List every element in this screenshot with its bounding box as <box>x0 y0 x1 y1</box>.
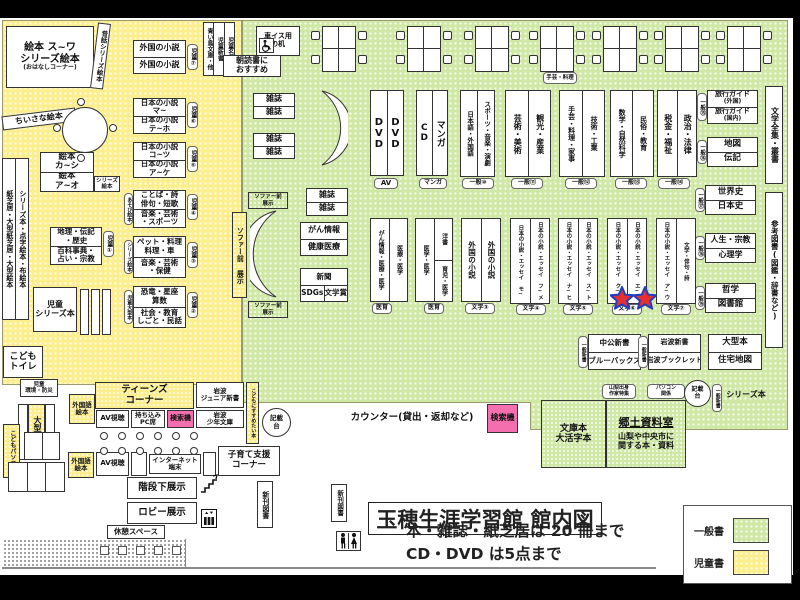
chair <box>639 55 648 64</box>
shelf-column: シリーズ本・点字絵本・布絵本 <box>15 159 28 319</box>
label-line: 哲学 <box>722 286 739 296</box>
general-shinsho-tag-1: 一般新書 <box>578 336 588 368</box>
childcare-support-corner: 子育て支援コーナー <box>218 446 280 476</box>
medical-tag-1: 医育 <box>372 303 392 314</box>
literature-tag-7: 文学⑦ <box>661 304 691 315</box>
label-line: 俳句・短歌 <box>141 200 179 208</box>
label-line: 雑誌 <box>266 95 282 104</box>
label-line: こども <box>9 352 36 362</box>
philosophy-library-shelf: 哲学図書館 <box>705 283 756 313</box>
craft-tech-shelf: 手芸・料理・家事技術・工業 <box>559 90 605 177</box>
label-line: 絵本 <box>75 465 88 472</box>
shelf-cell: 音楽・芸術・スポーツ <box>134 209 185 228</box>
medical-yosho-shelf: 医学・医学洋書育児・医学 <box>415 218 453 302</box>
shelf-column: 日本語・外国語 <box>461 91 477 176</box>
label-line: 環境・防災 <box>25 388 53 394</box>
label-line: 図書館 <box>718 300 744 310</box>
chair <box>118 447 126 455</box>
shelf-cell: SDGs文学賞 <box>301 285 347 302</box>
shelf-cell: 岩波ブックレット <box>649 352 700 370</box>
magazines-1: 雑誌雑誌 <box>253 93 295 119</box>
reading-table <box>407 26 441 72</box>
foreign-picture-books-2: 外国語絵本 <box>68 452 94 478</box>
label-line: カウンター(貸出・返却など) <box>351 413 474 424</box>
japanese-novels-a: 日本の小説・エッセイ ア~ウ文学・俳句・詩 <box>656 218 696 304</box>
loan-limit-note: 本・雑誌・紙芝居は 20 冊まで <box>406 519 624 541</box>
chair <box>716 31 725 40</box>
label-line: 大活字本 <box>555 434 591 444</box>
label-line: 大型本 <box>722 338 748 348</box>
shelf-cell: 心理学 <box>706 248 755 263</box>
shelf-strip-1 <box>80 289 89 335</box>
foreign-novels-shelf: 外国の小説外国の小説 <box>461 218 501 302</box>
chair <box>763 31 772 40</box>
shelf-cell: 日本の小説マ~ <box>134 99 185 116</box>
japanese-novels-na: 日本の小説・エッセイ ナ~ヒ日本の小説・エッセイ ス~ト <box>558 218 598 304</box>
star-marker-icon <box>633 286 657 310</box>
label-line: 岩波新書 <box>661 339 689 347</box>
bench <box>136 546 145 555</box>
geography-encyclopedia-shelf: 地理・伝記・歴史百科事典・占い・宗教 <box>50 227 102 265</box>
shelf-cell: 外国の小説 <box>134 57 185 74</box>
children-tag-6: 児童⑥ <box>187 102 198 128</box>
label-line: 階段下展示 <box>138 483 186 494</box>
shelf-column: DVD <box>387 91 404 175</box>
label-line: 算数 <box>152 297 167 305</box>
shelf-cell: 日本史 <box>706 200 755 215</box>
label-line: ジュニア新書 <box>201 395 240 402</box>
chair <box>511 55 520 64</box>
chair <box>154 447 162 455</box>
av-limit-note: CD・DVD は5点まで <box>406 542 562 564</box>
chair <box>53 124 61 132</box>
new-books-2: 新刊図書 <box>331 484 347 522</box>
label-line: ア~ケ <box>149 169 170 177</box>
shelf-column: スポーツ・音楽・演劇 <box>477 91 494 176</box>
label-line: 料理・車 <box>145 247 175 255</box>
label-line: 関係 <box>661 392 671 398</box>
new-books-1: 新刊図書 <box>257 481 273 528</box>
play-books-label: あそび絵本 <box>124 193 133 225</box>
shelf-cell: 雑誌 <box>307 202 347 216</box>
local-history-room: 郷土資料室山梨や中央市に関する本・資料 <box>606 400 686 468</box>
legend-general-label: 一般書 <box>694 523 724 538</box>
shelf-column: 技術・工業 <box>582 91 605 176</box>
shelf-column: 税金・福祉 <box>658 91 677 176</box>
math-science-shelf: 数学・自然科学民俗・教育 <box>610 90 654 177</box>
shelf-cell: 図書館 <box>706 298 755 313</box>
shelf-cell: 恐竜・星座算数 <box>134 287 185 307</box>
chair <box>358 55 367 64</box>
chair <box>100 447 108 455</box>
legend-children-label: 児童書 <box>694 555 724 570</box>
label-line: 伝記 <box>724 154 741 164</box>
pets-cooking-shelf: ペット・料理料理・車音楽・芸術・保健 <box>133 236 186 278</box>
label-line: 洋書 <box>435 219 453 260</box>
shelf-cell: 中公新書 <box>589 335 640 352</box>
label-line: 住宅地図 <box>718 356 752 366</box>
label-line: 絵本 <box>101 184 112 190</box>
reading-table <box>322 26 356 72</box>
shelf-column: 芸術・美術 <box>506 91 528 176</box>
magazines-3: 雑誌雑誌 <box>306 188 348 216</box>
chair <box>576 55 585 64</box>
shelf-cell: 雑誌 <box>307 189 347 202</box>
display-crescent <box>314 88 348 168</box>
children-tag-2: 児童② <box>187 292 198 318</box>
label-line: 休憩スペース <box>114 528 158 536</box>
sofa-display-top: ソファー前展示 <box>248 192 288 209</box>
shelf-cell: 日本の小説ア~ケ <box>134 160 185 178</box>
legend-general-swatch <box>733 518 769 543</box>
pc-related-tag: パソコン関係 <box>647 384 685 399</box>
chair <box>654 31 663 40</box>
label-line: しごと・民話 <box>137 317 182 325</box>
travel-guide-shelf: 旅行ガイド(外国)旅行ガイド(国内) <box>707 90 758 124</box>
chair <box>701 31 710 40</box>
label-line: 展示 <box>262 310 273 316</box>
legend: 一般書 児童書 <box>683 505 792 584</box>
shelf-cell: 哲学 <box>706 284 755 298</box>
series-picturebooks-label-left: シリーズ絵本 <box>124 240 133 274</box>
shelf-cell: 伝記 <box>708 152 757 167</box>
picture-books-ka-o: 絵本カ~シ絵本ア~オ <box>40 152 94 192</box>
label-line: テ~ホ <box>149 125 170 133</box>
shelf-cell: 雑誌 <box>254 134 294 146</box>
teens-corner: ティーンズコーナー <box>95 382 194 409</box>
chair <box>358 31 367 40</box>
shelf-column: 日本の小説・エッセイ ア~ウ <box>657 219 676 303</box>
shelf-column: 医学・医学 <box>416 219 434 301</box>
av-seat-2: AV視聴 <box>96 452 129 476</box>
japanese-novels-mo: 日本の小説・エッセイ モ~日本の小説・エッセイ フ~メ <box>510 218 550 304</box>
children-environment-shelf: 児童環境・防災 <box>20 379 58 397</box>
writing-desk-1: 記載台 <box>262 408 291 437</box>
chair <box>311 31 320 40</box>
newspaper-sdgs-shelf: 新聞SDGs文学賞 <box>300 268 348 302</box>
shelf-cell: 世界史 <box>706 186 755 200</box>
shelf-column: CD <box>417 91 432 175</box>
legend-children-swatch <box>733 550 769 575</box>
chair <box>396 55 405 64</box>
label-line: シリーズ本 <box>35 310 75 319</box>
shelf-cell: 旅行ガイド(国内) <box>708 107 757 124</box>
iwanami-shinsho-shelf: 岩波新書岩波ブックレット <box>648 334 701 370</box>
chair <box>639 31 648 40</box>
foreign-novels-children: 外国の小説外国の小説 <box>133 40 186 74</box>
label-line: おすすめ <box>236 66 268 75</box>
label-line: (国内) <box>724 116 742 123</box>
shelf-cell: 地図 <box>708 138 757 152</box>
shelf-cell: 音楽・芸術・保健 <box>134 257 185 278</box>
tax-politics-shelf: 税金・福祉政治・法律 <box>657 90 697 177</box>
label-line: マ~ <box>153 107 167 115</box>
general-tag-12: 一般⑫ <box>565 178 597 189</box>
shelf-cell: 新聞 <box>301 269 347 285</box>
shelf-column: 日本の小説・エッセイ ナ~ヒ <box>559 219 578 303</box>
label-line: 台 <box>273 423 280 430</box>
table-cell <box>27 463 46 491</box>
label-line: トイレ <box>9 362 36 372</box>
large-books-housing-maps: 大型本住宅地図 <box>708 334 762 370</box>
literature-complete-works: 文学全集・叢書 <box>765 86 783 184</box>
chair <box>311 55 320 64</box>
chair <box>464 31 473 40</box>
label-line: ロビー展示 <box>138 508 186 519</box>
chair <box>154 432 162 440</box>
shelf-cell: ことば・詩俳句・短歌 <box>134 191 185 209</box>
shelf-column: 文学・俳句・詩 <box>676 219 696 303</box>
table-cell <box>45 463 64 491</box>
shelf-cell: ブルーバックス <box>589 352 640 370</box>
art-tourism-shelf: 芸術・美術観光・産業 <box>505 90 551 177</box>
shelf-column: 医療・医学 <box>389 219 408 301</box>
label-line: 心理学 <box>719 251 743 260</box>
iwanami-junior-shinsho: 岩波ジュニア新書 <box>196 382 244 408</box>
label-line: コ~ツ <box>149 151 170 159</box>
label-line: がん情報 <box>308 226 340 235</box>
shelf-cell: 旅行ガイド(外国) <box>708 91 757 107</box>
label-line: コーナー <box>232 461 266 471</box>
shelf-cell: 百科事典・占い・宗教 <box>51 246 101 265</box>
label-line: 人生・宗教 <box>711 236 751 245</box>
yamanashi-authors-tag: 山梨出身作家特集 <box>602 384 636 399</box>
cancer-medical-shelf: がん情報・医療・医学医療・医学 <box>370 218 408 302</box>
reading-table <box>603 26 637 72</box>
dinosaur-society-shelf: 恐竜・星座算数社会・教育しごと・民話 <box>133 286 186 328</box>
children-tag-4: 児童④ <box>187 194 198 220</box>
chair <box>443 55 452 64</box>
wheelchair-icon <box>259 38 274 53</box>
children-tag-1: 児童① <box>103 231 114 257</box>
iwanami-shonen-bunko: 岩波少年文庫 <box>196 410 244 428</box>
label-line: ブルーバックス <box>589 357 640 365</box>
round-table <box>62 107 108 153</box>
internet-terminal: インターネット端末 <box>149 454 201 474</box>
label-line: 端末 <box>169 464 182 471</box>
general-tag-11: 一般⑪ <box>511 178 543 189</box>
shelf-cell: 絵本カ~シ <box>41 153 93 172</box>
shelf-column: 数学・自然科学 <box>611 91 632 176</box>
kids-toilet: こどもトイレ <box>3 346 43 378</box>
shelf-cell: 絵本 ス~ワシリーズ絵本(おはなしコーナー) <box>7 27 93 87</box>
label-line: AV視聴 <box>100 460 124 468</box>
label-line: ティーンズ <box>121 385 167 396</box>
general-tag-10: 一般⑩ <box>462 178 494 189</box>
chair <box>443 31 452 40</box>
shelf-column: 日本の小説・エッセイ モ~ <box>511 219 530 303</box>
label-line: SDGs <box>301 286 324 302</box>
general-tag-14: 一般⑭ <box>658 178 690 189</box>
shelf-cell: ペット・料理料理・車 <box>134 237 185 257</box>
shelf-column: 紙芝居・大型紙芝居・大型絵本 <box>3 159 15 319</box>
shelf-cell: 地理・伝記・歴史 <box>51 228 101 246</box>
sofa-display-strip: ソファー前 展示 <box>232 212 247 298</box>
search-terminal-teens: 検索機 <box>167 410 194 428</box>
label-line: PC席 <box>140 419 156 426</box>
general-shinsho-tag-3: 一般新書 <box>712 384 722 412</box>
shelf-column: 日本の小説・エッセイ ス~ト <box>578 219 598 303</box>
map-canvas: 絵本 ス~ワシリーズ絵本(おはなしコーナー)昔話シリーズ絵本ちいさな絵本外国の小… <box>0 18 793 575</box>
display-crescent <box>250 208 284 300</box>
label-line: 外国の小説 <box>140 61 180 70</box>
reading-table <box>475 26 509 72</box>
shelf-cell: 大型本 <box>709 335 761 352</box>
label-line: 占い・宗教 <box>57 255 95 263</box>
label-line: (外国) <box>724 99 742 106</box>
dvd-shelf: DVDDVD <box>370 90 404 176</box>
general-shinsho-tag-2: 一般新書 <box>638 336 648 368</box>
picture-books-ohanashi: 絵本 ス~ワシリーズ絵本(おはなしコーナー) <box>6 26 94 88</box>
label-line: 文庫本 <box>560 424 587 434</box>
lobby-display: ロビー展示 <box>127 502 197 524</box>
shelf-cell: がん情報 <box>301 223 347 239</box>
paperback-large-print-shelf: 文庫本大活字本 <box>541 400 606 468</box>
shelf-cell: 岩波新書 <box>649 335 700 352</box>
chair <box>716 55 725 64</box>
chair <box>654 55 663 64</box>
shelf-column: 手芸・料理・家事 <box>560 91 582 176</box>
label-line: 雑誌 <box>266 148 282 157</box>
chair <box>396 31 405 40</box>
japanese-novels-children-a-tsu: 日本の小説コ~ツ日本の小説ア~ケ <box>133 142 186 178</box>
shelf-column: 外国の小説 <box>462 219 481 301</box>
label-line: 展示 <box>262 201 273 207</box>
children-tag-5: 児童⑤ <box>187 146 198 172</box>
search-terminal-main: 検索機 <box>487 404 518 433</box>
shelf-cell: 住宅地図 <box>709 352 761 370</box>
shelf-strip-3 <box>102 289 111 335</box>
shelf-column: 政治・法律 <box>677 91 697 176</box>
shelf-column: 観光・産業 <box>528 91 551 176</box>
table-cell <box>42 433 60 459</box>
literature-tag-4: 文学④ <box>516 304 546 315</box>
recommended-for-kids: こどもにすすめたい本 <box>246 382 259 444</box>
label-line: 雑誌 <box>266 135 282 144</box>
shelf-cell: 絵本ア~オ <box>41 172 93 192</box>
shelf-cell: 健康医療 <box>301 239 347 256</box>
cancer-info-health-shelf: がん情報健康医療 <box>300 222 348 256</box>
shelf-column: 日本の小説・エッセイ フ~メ <box>530 219 550 303</box>
children-tag-7: 児童⑦ <box>187 44 198 70</box>
label-line: 検索機 <box>170 415 191 423</box>
medical-tag-2: 医育 <box>424 303 444 314</box>
chair <box>172 432 180 440</box>
table-cell <box>25 433 42 459</box>
foreign-picture-books-1: 外国語絵本 <box>69 394 95 424</box>
kids-table-2 <box>8 462 65 492</box>
chair <box>100 432 108 440</box>
counter-label: カウンター(貸出・返却など) <box>339 407 485 429</box>
children-series-books: 児童シリーズ本 <box>33 287 77 332</box>
chair <box>190 432 198 440</box>
reading-table <box>665 26 699 72</box>
chair <box>109 124 117 132</box>
label-line: 作家特集 <box>609 392 629 398</box>
label-line: コーナー <box>125 396 163 407</box>
shelf-column: がん情報・医療・医学 <box>371 219 389 301</box>
chair <box>172 447 180 455</box>
library-floor-map: 絵本 ス~ワシリーズ絵本(おはなしコーナー)昔話シリーズ絵本ちいさな絵本外国の小… <box>0 0 800 600</box>
label-line: 地図 <box>724 140 741 150</box>
label-line: 絵本 ス~ワ <box>24 42 76 53</box>
label-line: 台 <box>694 394 700 401</box>
series-books-label: シリーズ本 <box>722 389 770 402</box>
morning-reading-recommend: 朝読書におすすめ <box>223 55 281 77</box>
shelf-column: マンガ <box>432 91 448 175</box>
label-line: 育児・医学 <box>435 260 453 302</box>
sofa-display-bottom: ソファー前展示 <box>248 301 288 318</box>
shelf-cell: 雑誌 <box>254 106 294 119</box>
bench <box>154 546 163 555</box>
label-line: ア~オ <box>55 182 79 191</box>
restroom-icon <box>336 531 361 551</box>
shelf-column: 洋書育児・医学 <box>434 219 453 301</box>
label-line: 日本史 <box>718 202 744 212</box>
label-line: カ~シ <box>55 162 79 171</box>
shelf-cell: 人生・宗教 <box>706 234 755 248</box>
world-japan-history-shelf: 世界史日本史 <box>705 185 756 215</box>
bench <box>118 546 127 555</box>
chair <box>77 154 85 162</box>
japanese-novels-children-ma-ho: 日本の小説マ~日本の小説テ~ホ <box>133 98 186 134</box>
general-tag-19: 一般⑲ <box>695 286 705 310</box>
general-tag-16: 一般⑯ <box>697 140 707 164</box>
chuko-shinsho-shelf: 中公新書ブルーバックス <box>588 334 641 370</box>
reading-table <box>540 26 574 72</box>
shelf-cell: 雑誌 <box>254 94 294 106</box>
bench <box>172 546 181 555</box>
label-line: 中公新書 <box>600 339 630 347</box>
magazines-2: 雑誌雑誌 <box>253 133 295 159</box>
label-line: 世界史 <box>718 188 744 198</box>
general-tag-15: 一般⑮ <box>697 93 707 121</box>
life-religion-shelf: 人生・宗教心理学 <box>705 233 756 263</box>
label-line: AV視聴 <box>100 415 124 423</box>
kids-table-1 <box>24 432 60 460</box>
cd-manga-shelf: CDマンガ <box>416 90 448 176</box>
manga-tag: マンガ <box>419 178 447 189</box>
label-line: シリーズ本 <box>726 391 766 400</box>
shelf-strip-2 <box>91 289 100 335</box>
label-line: 検索機 <box>491 414 515 423</box>
chair <box>190 447 198 455</box>
general-tag-13: 一般⑬ <box>615 178 647 189</box>
children-largebooks-label: 児童大型本 <box>124 290 133 324</box>
chair <box>763 55 772 64</box>
av-seat-1: AV視聴 <box>96 410 129 428</box>
under-stairs-display: 階段下展示 <box>127 477 197 499</box>
chair <box>464 55 473 64</box>
bench <box>100 546 109 555</box>
reading-table <box>727 26 761 72</box>
shelf-cell: 日本の小説コ~ツ <box>134 143 185 160</box>
shelf-column: 民俗・教育 <box>632 91 654 176</box>
rest-space-label: 休憩スペース <box>107 525 165 539</box>
label-line: 岩波ブックレット <box>649 357 700 365</box>
table-cell <box>9 463 27 491</box>
label-line: 雑誌 <box>319 204 335 213</box>
chair <box>136 447 144 455</box>
writing-desk-2: 記載台 <box>684 380 711 407</box>
label-line: 外国の小説 <box>140 44 180 53</box>
literature-tag-3: 文学③ <box>465 303 495 314</box>
language-shelf: 日本語・外国語スポーツ・音楽・演劇 <box>460 90 495 177</box>
children-tag-3: 児童③ <box>187 242 198 268</box>
craft-cooking-tag: 手芸・料理 <box>543 72 577 84</box>
label-line: ・スポーツ <box>141 218 178 226</box>
label-line: 少年文庫 <box>207 419 233 426</box>
